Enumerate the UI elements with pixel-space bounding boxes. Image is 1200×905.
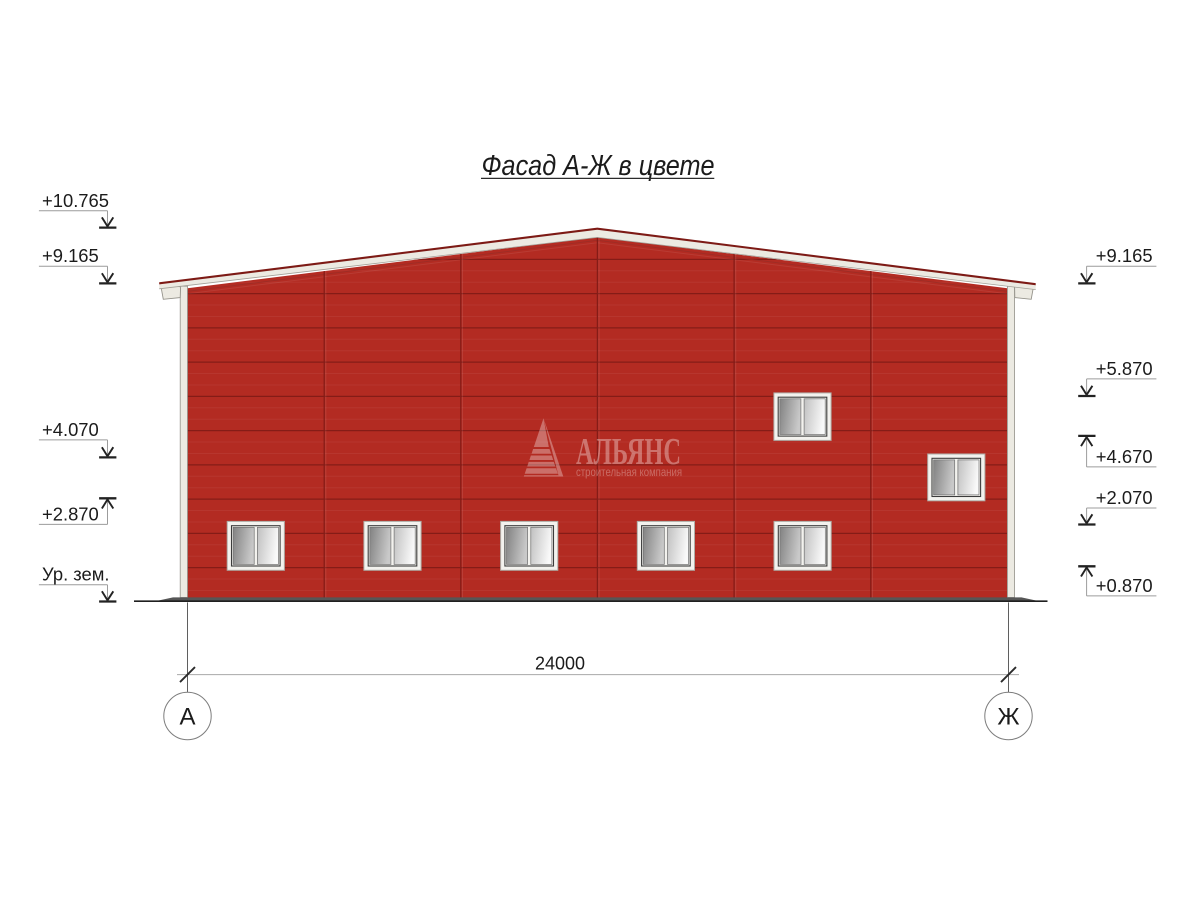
svg-text:А: А (179, 704, 195, 731)
svg-text:+4.670: +4.670 (1096, 446, 1153, 467)
svg-text:+2.070: +2.070 (1096, 487, 1153, 508)
svg-text:+2.870: +2.870 (42, 503, 99, 524)
svg-text:+0.870: +0.870 (1096, 575, 1153, 596)
svg-text:+10.765: +10.765 (42, 190, 109, 211)
svg-text:+9.165: +9.165 (1096, 245, 1153, 266)
svg-text:строительная компания: строительная компания (576, 467, 682, 479)
svg-text:24000: 24000 (535, 654, 585, 674)
svg-text:Ж: Ж (997, 704, 1019, 731)
svg-text:+5.870: +5.870 (1096, 358, 1153, 379)
svg-text:Ур. зем.: Ур. зем. (42, 564, 110, 585)
svg-text:+4.070: +4.070 (42, 419, 99, 440)
svg-text:Фасад А-Ж в цвете: Фасад А-Ж в цвете (482, 150, 715, 182)
svg-text:+9.165: +9.165 (42, 245, 99, 266)
